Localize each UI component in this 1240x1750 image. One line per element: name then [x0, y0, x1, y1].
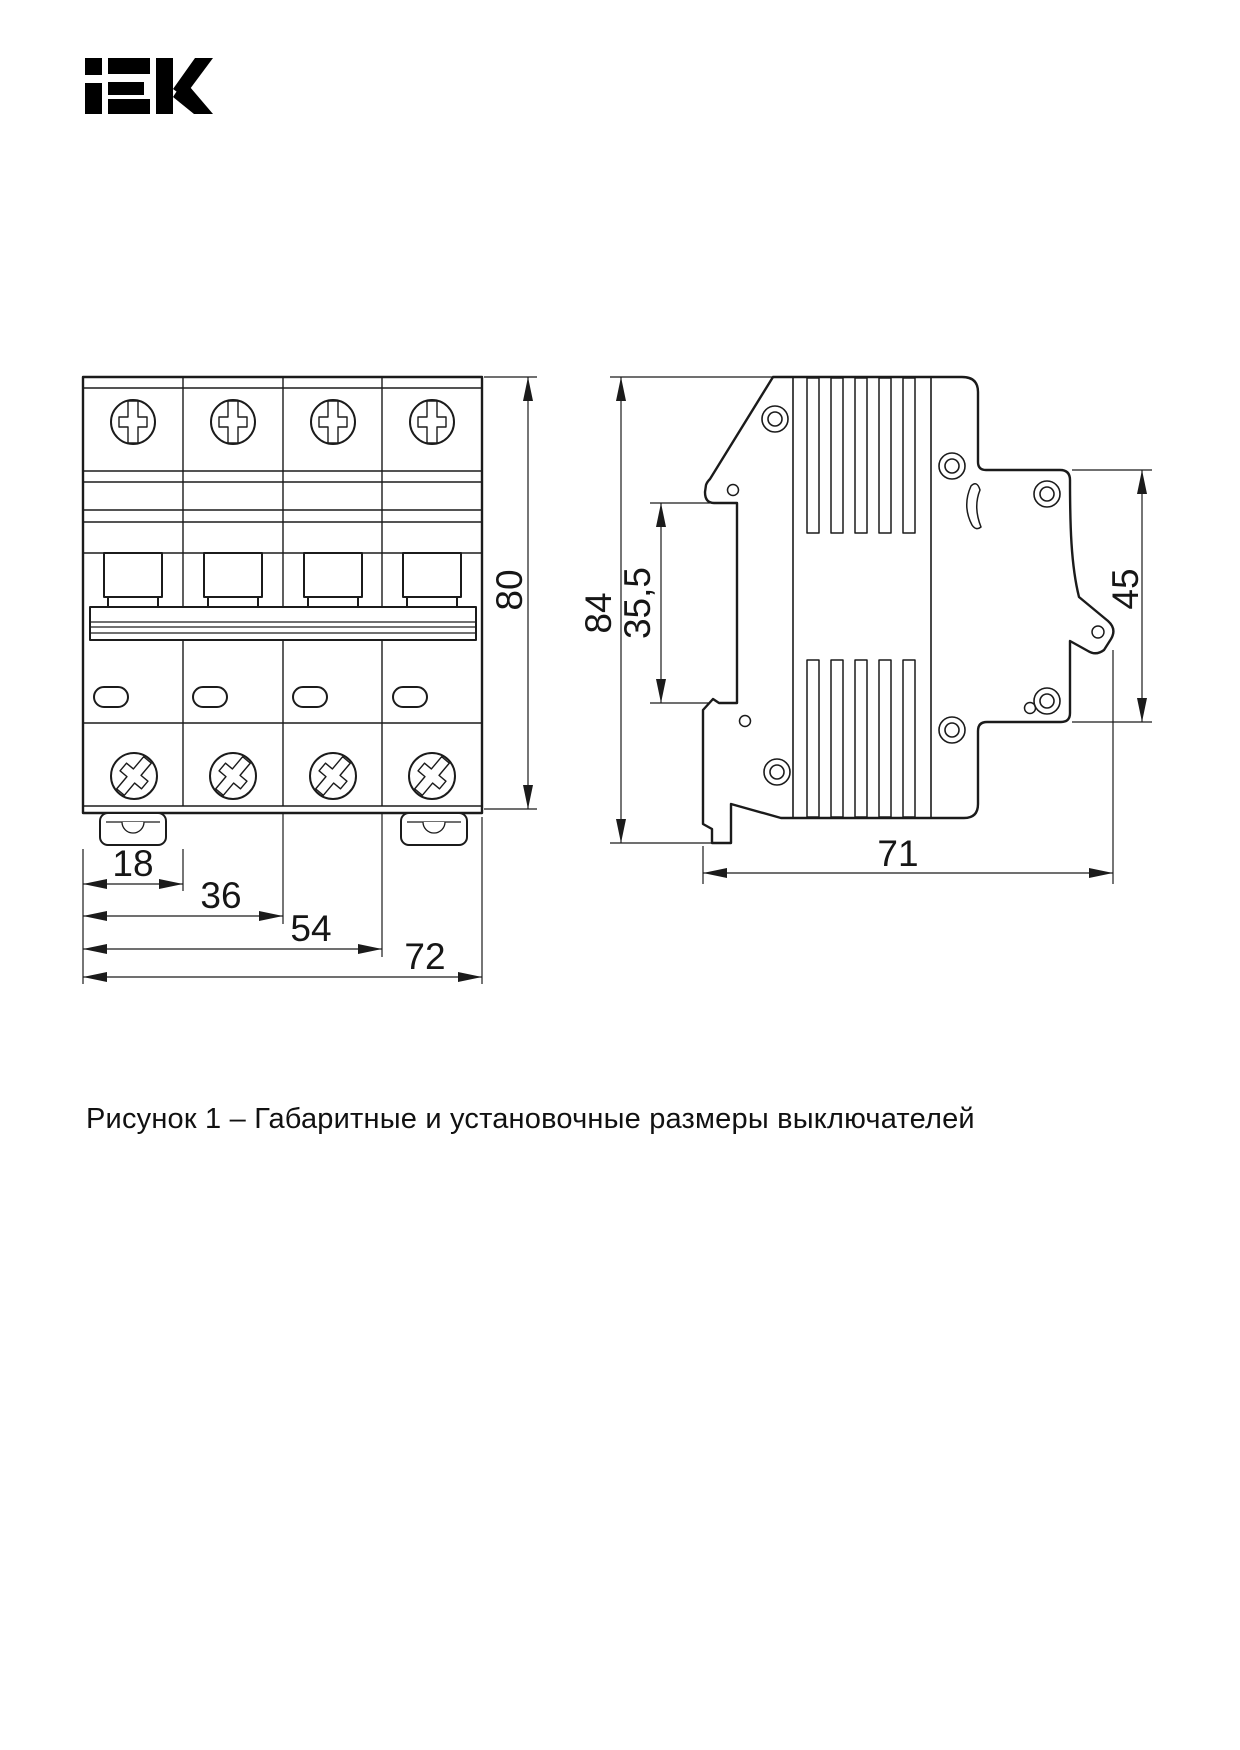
dim-width-54: 54 — [290, 908, 331, 949]
indicator-window — [94, 687, 128, 707]
toggle-handle — [304, 553, 362, 607]
dim-height-80: 80 — [489, 569, 530, 610]
technical-drawing: 18 36 54 72 80 — [0, 0, 1240, 1160]
logo-e-bot — [108, 99, 150, 114]
dim-width-18: 18 — [112, 843, 153, 884]
datasheet-page: 18 36 54 72 80 — [0, 0, 1240, 1750]
screw-icon — [211, 400, 255, 444]
screw-icon — [410, 400, 454, 444]
dim-width-72: 72 — [404, 936, 445, 977]
logo-e-mid — [108, 82, 144, 95]
din-clip — [100, 813, 166, 845]
screw-icon — [111, 400, 155, 444]
screw-icon — [311, 400, 355, 444]
logo-i-stem — [85, 83, 102, 114]
front-view — [83, 377, 482, 845]
dim-width-36: 36 — [200, 875, 241, 916]
indicator-window — [193, 687, 227, 707]
side-view — [703, 377, 1113, 843]
toggle-handle — [104, 553, 162, 607]
din-clip — [401, 813, 467, 845]
dim-depth-71: 71 — [877, 833, 918, 874]
figure-caption: Рисунок 1 – Габаритные и установочные ра… — [86, 1103, 975, 1136]
logo-i-dot — [85, 58, 102, 75]
tie-bar — [90, 607, 476, 640]
dim-panel-45: 45 — [1105, 568, 1146, 609]
logo-e-top — [108, 58, 150, 74]
toggle-handle — [204, 553, 262, 607]
indicator-window — [293, 687, 327, 707]
iek-logo — [85, 58, 213, 114]
indicator-window — [393, 687, 427, 707]
toggle-handle — [403, 553, 461, 607]
dim-height-84: 84 — [578, 592, 619, 633]
dim-recess-35-5: 35,5 — [617, 567, 658, 639]
logo-k-stem — [156, 58, 173, 114]
